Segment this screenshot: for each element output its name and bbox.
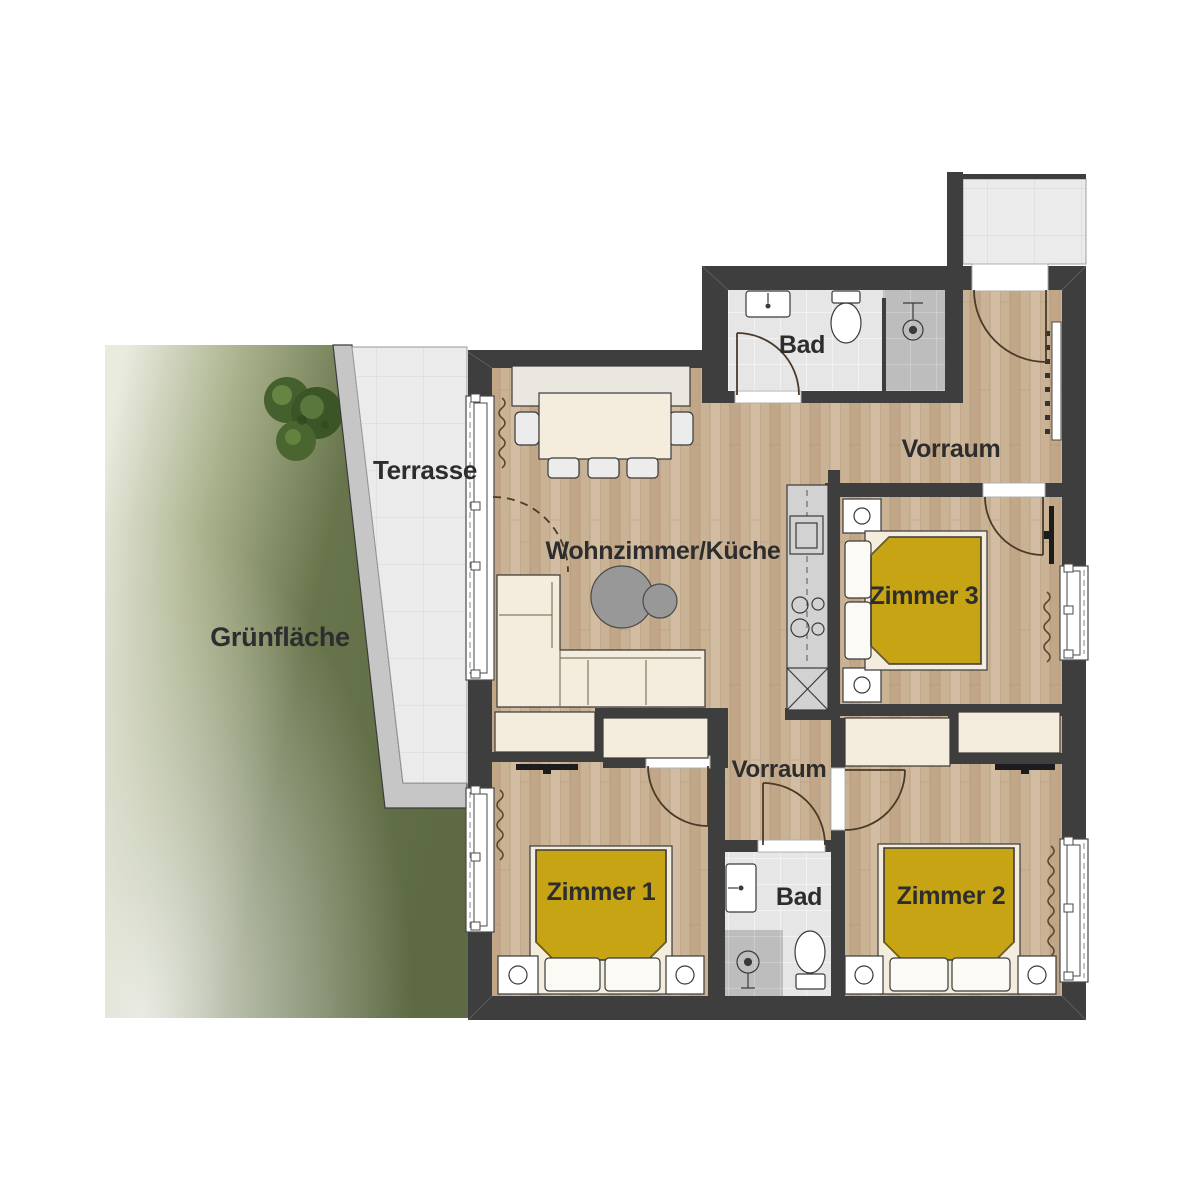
toilet-icon — [831, 303, 861, 343]
label-terrace: Terrasse — [373, 455, 477, 485]
floorplan-canvas: Grünfläche Terrasse Wohnzimmer/Küche Bad… — [0, 0, 1200, 1200]
nightstand — [498, 956, 538, 994]
dining-chair — [548, 458, 579, 478]
dining-table — [539, 393, 671, 459]
coat-hook-icon — [1045, 373, 1050, 378]
label-hall-top: Vorraum — [902, 435, 1001, 463]
tree-shadow-dot — [297, 415, 307, 425]
wall-entry-spur — [947, 172, 963, 266]
wall-room3-top — [825, 483, 1086, 497]
wall-bath-top-left — [702, 290, 728, 392]
label-room2: Zimmer 2 — [897, 882, 1006, 910]
label-living-kitchen: Wohnzimmer/Küche — [545, 537, 780, 565]
bath-top-door-opening — [735, 391, 801, 403]
nightstand — [843, 668, 881, 702]
toilet-tank-icon — [796, 974, 825, 989]
tv-room1-icon — [516, 764, 578, 770]
wardrobe — [958, 712, 1060, 753]
window-room3 — [1060, 564, 1088, 660]
wardrobe — [845, 718, 950, 766]
wall-room2-left-upper — [831, 718, 845, 770]
tv-room3-icon — [1049, 506, 1054, 564]
room2-door-opening — [831, 768, 845, 830]
room3-door-opening — [983, 483, 1045, 497]
bath-bottom-door-opening — [758, 840, 825, 852]
label-room3: Zimmer 3 — [870, 582, 979, 610]
nightstand — [843, 499, 881, 533]
faucet-icon — [766, 304, 771, 309]
wall-niche-right-stub — [708, 708, 728, 768]
dining-chair — [588, 458, 619, 478]
toilet-tank-icon — [832, 291, 860, 303]
tv-stand — [543, 770, 551, 774]
dining-chair — [669, 412, 693, 445]
dining-chair — [515, 412, 539, 445]
nightstand — [666, 956, 704, 994]
wall-exterior-bottom — [468, 996, 1086, 1020]
wall-shower-partition — [882, 298, 886, 391]
label-green-area: Grünfläche — [210, 622, 350, 652]
wall-kitchen — [828, 470, 840, 710]
wall-niche-left-stub — [595, 708, 603, 762]
pillow — [545, 958, 600, 991]
wall-room2-top — [948, 753, 1062, 764]
wall-entry-top-line — [963, 174, 1086, 179]
pillow — [845, 602, 871, 659]
coat-hook-icon — [1045, 429, 1050, 434]
floorplan-svg: Grünfläche Terrasse Wohnzimmer/Küche Bad… — [0, 0, 1200, 1200]
toilet-icon — [795, 931, 825, 973]
wall-room1-top-left — [468, 752, 603, 762]
tv-room2-icon — [995, 764, 1055, 770]
coffee-table — [643, 584, 677, 618]
pillow — [845, 541, 871, 598]
wall-top-living — [468, 350, 728, 368]
pillow — [952, 958, 1010, 991]
coat-hook-icon — [1045, 387, 1050, 392]
tv-stand — [1044, 531, 1049, 539]
label-bath-bottom: Bad — [776, 883, 822, 911]
dining-chair — [627, 458, 658, 478]
window-room1 — [466, 786, 494, 932]
tree-highlight — [272, 385, 292, 405]
wall-room1-right — [708, 768, 725, 996]
nightstand — [845, 956, 883, 994]
wall-bath-top-right — [945, 290, 963, 403]
pillow — [890, 958, 948, 991]
sideboard-living-niche — [495, 712, 595, 752]
label-hall-bottom: Vorraum — [732, 756, 827, 783]
coat-hook-icon — [1045, 415, 1050, 420]
tree-highlight — [285, 429, 301, 445]
label-room1: Zimmer 1 — [547, 878, 656, 906]
label-bath-top: Bad — [779, 331, 825, 359]
coat-hook-icon — [1045, 401, 1050, 406]
site — [105, 345, 468, 1018]
wall-room1-door — [603, 758, 648, 768]
entry-tiles — [963, 179, 1086, 264]
bath-bottom-shower-floor — [725, 930, 783, 996]
window-living — [466, 394, 494, 680]
faucet-icon — [739, 886, 744, 891]
nightstand — [1018, 956, 1056, 994]
tv-stand — [1021, 770, 1029, 774]
wall-room2-left-lower — [831, 830, 845, 852]
wardrobe — [603, 718, 708, 758]
tree-shadow-dot — [321, 421, 329, 429]
window-room2 — [1060, 837, 1088, 982]
wall-bath-bottom-right — [831, 852, 845, 996]
entrance-door-opening — [972, 264, 1048, 291]
pillow — [605, 958, 660, 991]
